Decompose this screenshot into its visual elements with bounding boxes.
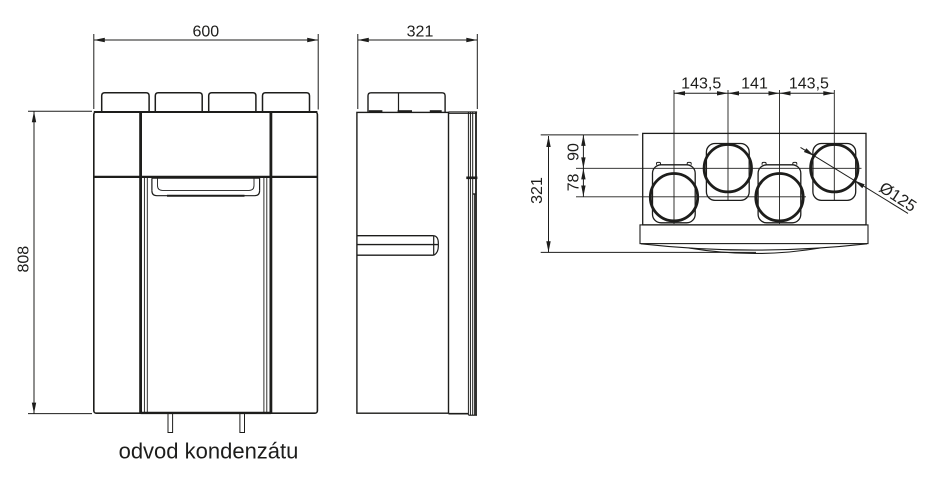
- svg-text:600: 600: [192, 24, 219, 41]
- svg-text:808: 808: [16, 246, 33, 273]
- svg-text:90: 90: [566, 143, 583, 161]
- svg-text:141: 141: [741, 76, 768, 93]
- svg-text:321: 321: [529, 177, 546, 204]
- svg-text:odvod kondenzátu: odvod kondenzátu: [119, 439, 299, 464]
- svg-text:321: 321: [407, 24, 434, 41]
- svg-text:78: 78: [566, 174, 583, 192]
- svg-text:143,5: 143,5: [681, 76, 721, 93]
- svg-text:143,5: 143,5: [789, 76, 829, 93]
